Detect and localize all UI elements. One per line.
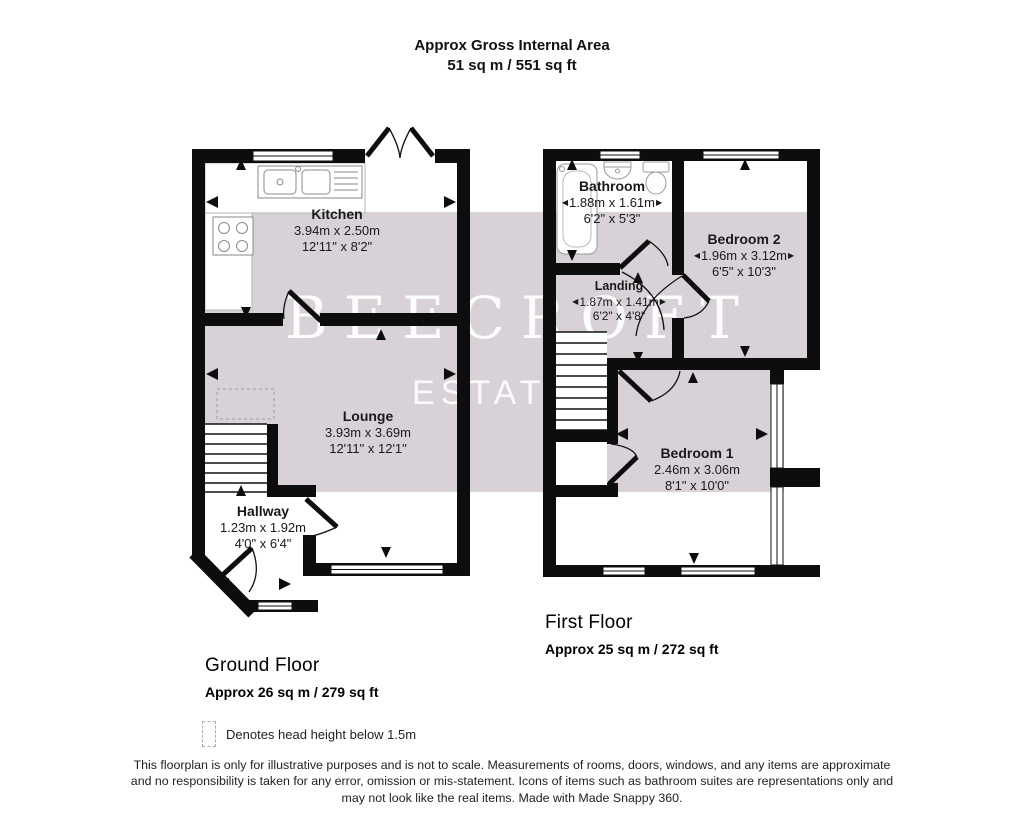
entrance-diagonal-wall (194, 553, 253, 613)
room-dim-imperial: 4'0" x 6'4" (220, 536, 306, 552)
floor-label: Ground Floor (205, 655, 379, 677)
room-dim-imperial: 6'5" x 10'3" (693, 264, 795, 280)
legend: Denotes head height below 1.5m (202, 721, 416, 747)
floorplan-page: Approx Gross Internal Area 51 sq m / 551… (0, 0, 1024, 821)
arrow-left-icon: ◀ (562, 198, 568, 207)
legend-text: Denotes head height below 1.5m (226, 727, 416, 742)
floor-area: Approx 25 sq m / 272 sq ft (545, 641, 719, 657)
room-label-bedroom1: Bedroom 1 2.46m x 3.06m 8'1" x 10'0" (654, 445, 740, 495)
room-label-lounge: Lounge 3.93m x 3.69m 12'11" x 12'1" (325, 408, 411, 458)
room-dim-metric: ◀1.96m x 3.12m▶ (693, 248, 795, 264)
room-dim-imperial: 6'2" x 5'3" (561, 211, 663, 227)
sink-icon (258, 166, 362, 198)
room-dim-metric: ◀1.88m x 1.61m▶ (561, 195, 663, 211)
arrow-right-icon: ▶ (788, 251, 794, 260)
room-name: Bedroom 1 (654, 445, 740, 462)
floor-label: First Floor (545, 612, 719, 634)
room-label-landing: Landing ◀1.87m x 1.41m▶ 6'2" x 4'8" (571, 279, 667, 324)
arrow-right-icon: ▶ (660, 297, 666, 306)
room-name: Landing (571, 279, 667, 295)
room-name: Bathroom (561, 178, 663, 195)
hallway-door-icon (306, 499, 337, 536)
room-name: Kitchen (294, 206, 380, 223)
room-dim-metric: 3.93m x 3.69m (325, 425, 411, 441)
watermark-sub: ESTATES (0, 374, 1020, 413)
room-name: Hallway (220, 503, 306, 520)
disclaimer-line: may not look like the real items. Made w… (0, 790, 1024, 806)
room-dim-metric: ◀1.87m x 1.41m▶ (571, 295, 667, 310)
first-floor-title: First Floor Approx 25 sq m / 272 sq ft (545, 612, 719, 657)
room-label-hallway: Hallway 1.23m x 1.92m 4'0" x 6'4" (220, 503, 306, 553)
room-label-kitchen: Kitchen 3.94m x 2.50m 12'11" x 8'2" (294, 206, 380, 256)
header: Approx Gross Internal Area 51 sq m / 551… (0, 36, 1024, 77)
room-label-bedroom2: Bedroom 2 ◀1.96m x 3.12m▶ 6'5" x 10'3" (693, 231, 795, 281)
room-dim-metric: 1.23m x 1.92m (220, 520, 306, 536)
gross-area-text: 51 sq m / 551 sq ft (0, 56, 1024, 76)
basin-icon (604, 162, 631, 179)
room-name: Lounge (325, 408, 411, 425)
head-height-swatch-icon (202, 721, 216, 747)
room-dim-imperial: 12'11" x 8'2" (294, 239, 380, 255)
disclaimer-line: and no responsibility is taken for any e… (0, 773, 1024, 789)
room-name: Bedroom 2 (693, 231, 795, 248)
ground-floor-title: Ground Floor Approx 26 sq m / 279 sq ft (205, 655, 379, 700)
patio-door-icon (367, 128, 433, 158)
page-title: Approx Gross Internal Area (0, 36, 1024, 56)
exterior-recess (784, 487, 820, 565)
arrow-left-icon: ◀ (694, 251, 700, 260)
watermark-brand: BEECROFT (8, 284, 1024, 352)
arrow-left-icon: ◀ (572, 297, 578, 306)
front-door-icon (215, 548, 256, 592)
room-dim-imperial: 6'2" x 4'8" (571, 309, 667, 324)
room-dim-imperial: 12'11" x 12'1" (325, 441, 411, 457)
disclaimer-line: This floorplan is only for illustrative … (0, 757, 1024, 773)
room-dim-metric: 3.94m x 2.50m (294, 223, 380, 239)
floor-area: Approx 26 sq m / 279 sq ft (205, 684, 379, 700)
disclaimer: This floorplan is only for illustrative … (0, 757, 1024, 806)
arrow-right-icon: ▶ (656, 198, 662, 207)
room-dim-metric: 2.46m x 3.06m (654, 462, 740, 478)
room-label-bathroom: Bathroom ◀1.88m x 1.61m▶ 6'2" x 5'3" (561, 178, 663, 228)
room-dim-imperial: 8'1" x 10'0" (654, 478, 740, 494)
